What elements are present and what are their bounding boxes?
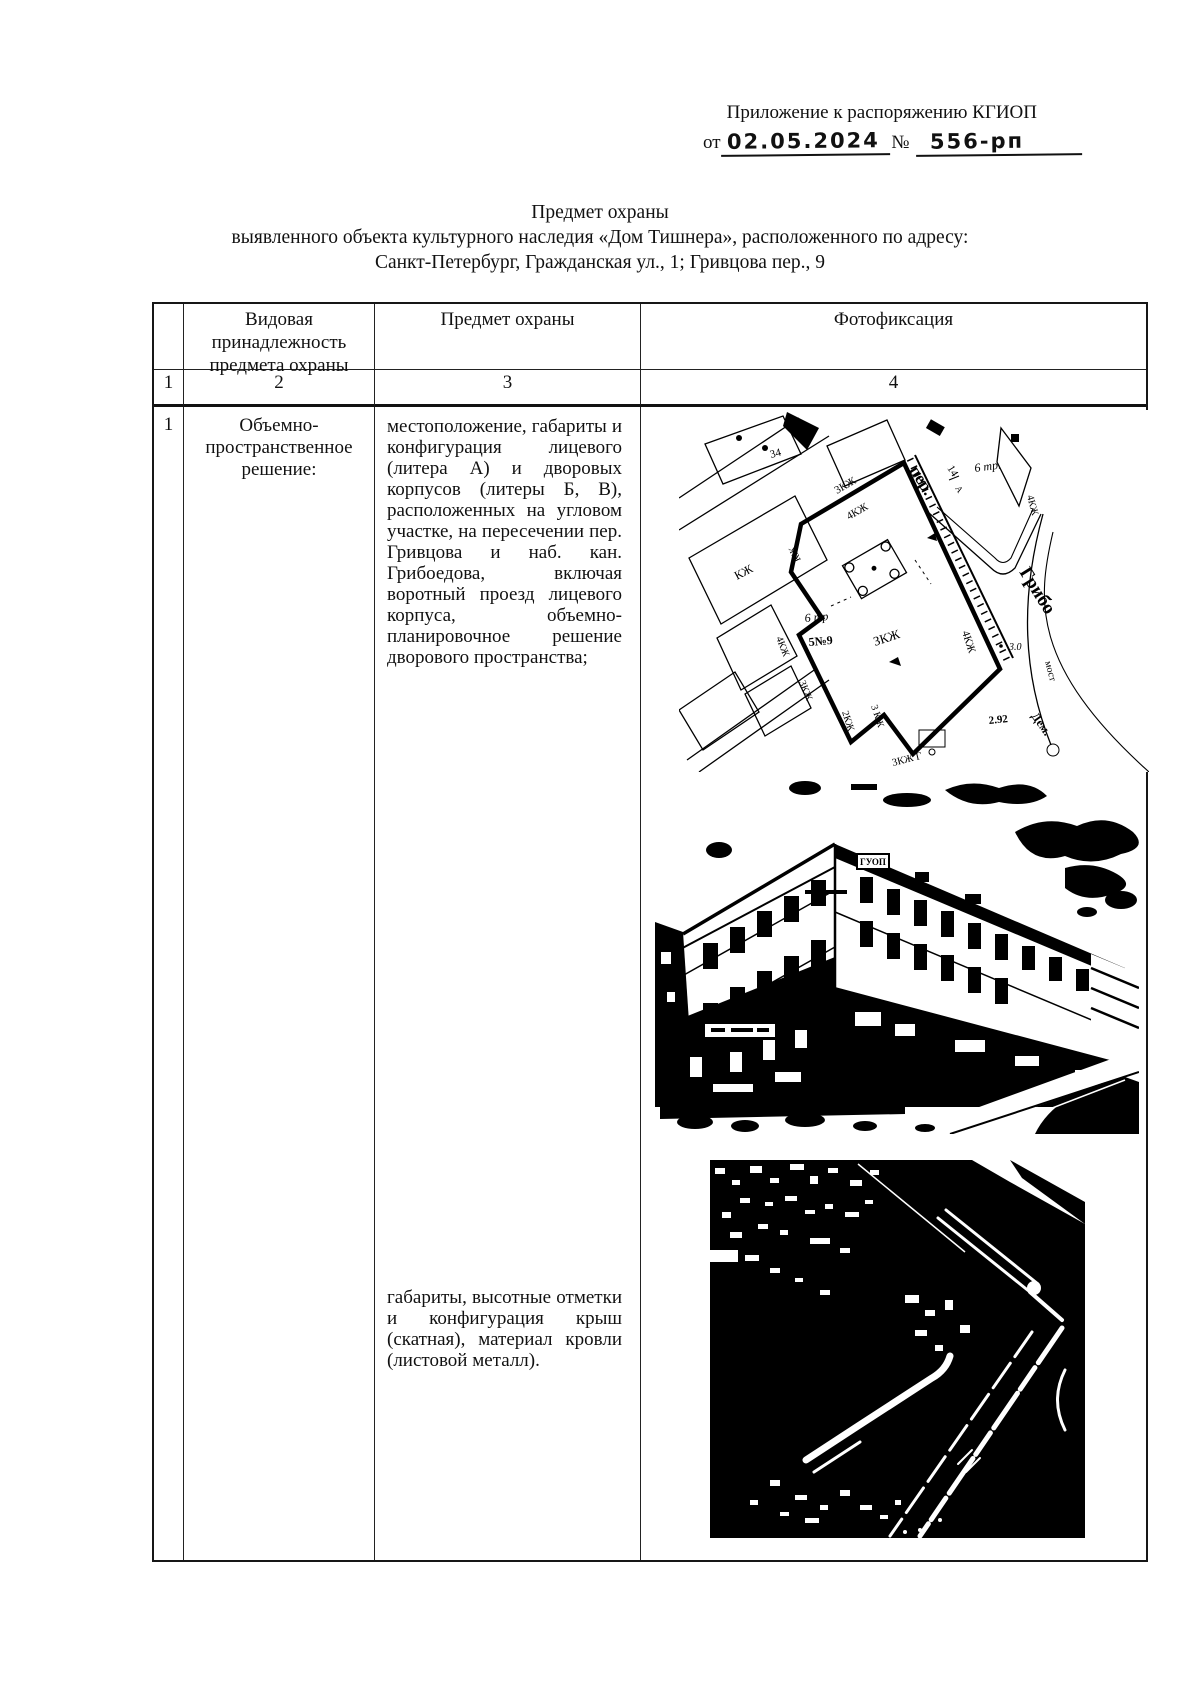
column-number-4: 4 — [641, 370, 1146, 407]
street-photo-figure: ГУОП — [655, 772, 1139, 1134]
aerial-roof-photo — [710, 1160, 1085, 1538]
header-cell-photo: Фотофиксация — [641, 304, 1146, 370]
row-subject-cell: местоположение, габариты и конфигурация … — [375, 407, 641, 1560]
row-category: Объемно-пространственное решение: — [184, 407, 375, 1560]
handwritten-date: 02.05.2024 — [720, 128, 889, 157]
site-plan-map: 34 пер. 14 А 6 тр. 4КЖ Грибо 3КЖ 4КЖ КЖ … — [679, 410, 1149, 772]
site-plan-figure: 34 пер. 14 А 6 тр. 4КЖ Грибо 3КЖ 4КЖ КЖ … — [679, 410, 1149, 772]
header-cell-category: Видовая принадлежность предмета охраны — [184, 304, 375, 370]
subject-paragraph-1: местоположение, габариты и конфигурация … — [375, 407, 641, 668]
column-number-3: 3 — [375, 370, 641, 407]
map-label-2-92: 2.92 — [988, 713, 1009, 727]
document-page: Приложение к распоряжению КГИОП от02.05.… — [0, 0, 1200, 1697]
street-photo: ГУОП — [655, 772, 1139, 1134]
aerial-photo-figure — [710, 1160, 1085, 1538]
from-label: от — [703, 132, 721, 153]
title-line2: выявленного объекта культурного наследия… — [0, 225, 1200, 250]
handwritten-number: 556-рп — [915, 128, 1081, 157]
title-line3: Санкт-Петербург, Гражданская ул., 1; Гри… — [0, 250, 1200, 275]
map-label-3-0: 3.0 — [1008, 642, 1022, 653]
map-label-6tr-w: 6 тр — [804, 609, 829, 625]
row-photo-cell: 34 пер. 14 А 6 тр. 4КЖ Грибо 3КЖ 4КЖ КЖ … — [641, 407, 1146, 1560]
map-label-5n9: 5№9 — [808, 633, 833, 649]
header-cell-subject: Предмет охраны — [375, 304, 641, 370]
column-number-1: 1 — [154, 370, 184, 407]
number-sign: № — [891, 132, 909, 153]
subject-paragraph-2: габариты, высотные отметки и конфигураци… — [387, 1287, 622, 1371]
protection-subject-table: Видовая принадлежность предмета охраны П… — [152, 302, 1148, 1562]
annex-date-number-line: от02.05.2024№556-рп — [703, 129, 1082, 156]
building-sign-text: ГУОП — [860, 857, 886, 867]
column-number-2: 2 — [184, 370, 375, 407]
annex-header-line: Приложение к распоряжению КГИОП — [727, 100, 1037, 126]
document-title: Предмет охраны выявленного объекта культ… — [0, 200, 1200, 275]
row-number: 1 — [154, 407, 184, 1560]
title-line1: Предмет охраны — [0, 200, 1200, 225]
header-cell-empty — [154, 304, 184, 370]
